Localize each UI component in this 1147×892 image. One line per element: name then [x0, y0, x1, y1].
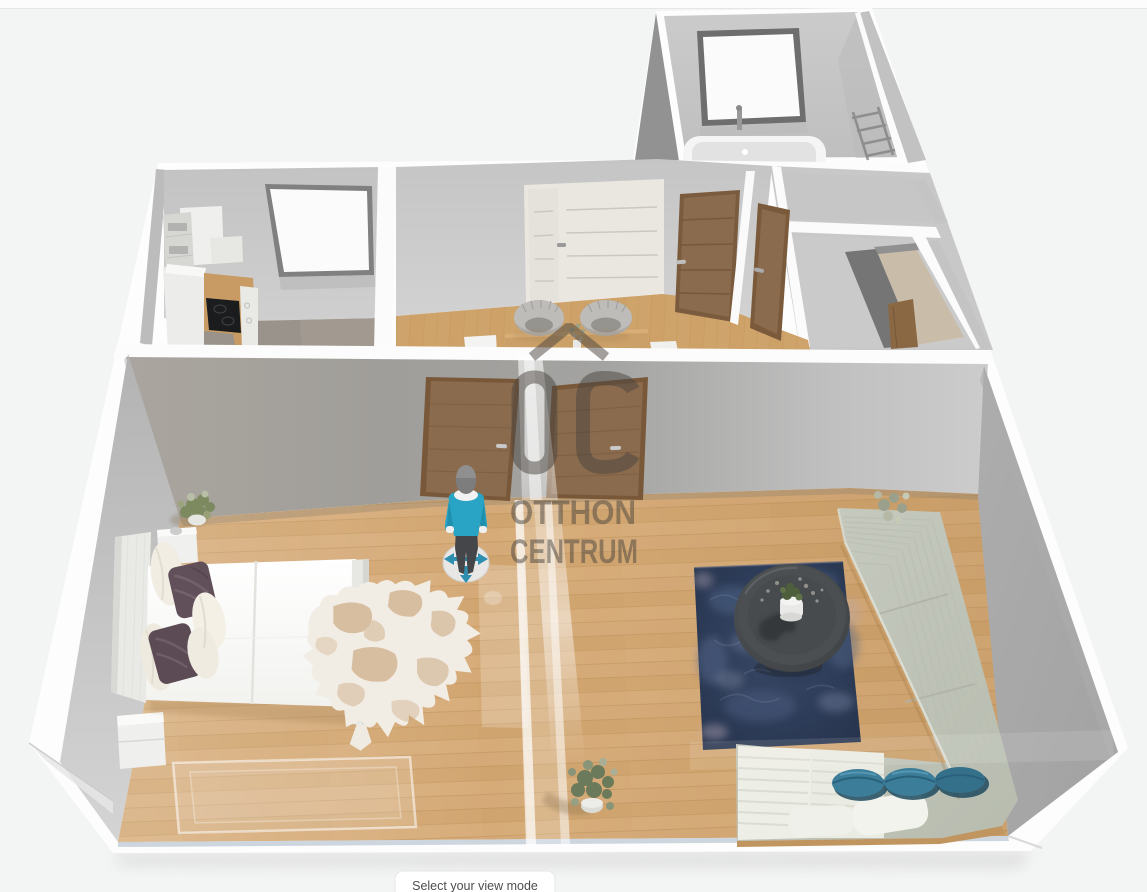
svg-text:Select your view mode: Select your view mode: [412, 879, 538, 892]
svg-text:CENTRUM: CENTRUM: [510, 533, 638, 571]
svg-text:OTTHON: OTTHON: [510, 494, 636, 532]
